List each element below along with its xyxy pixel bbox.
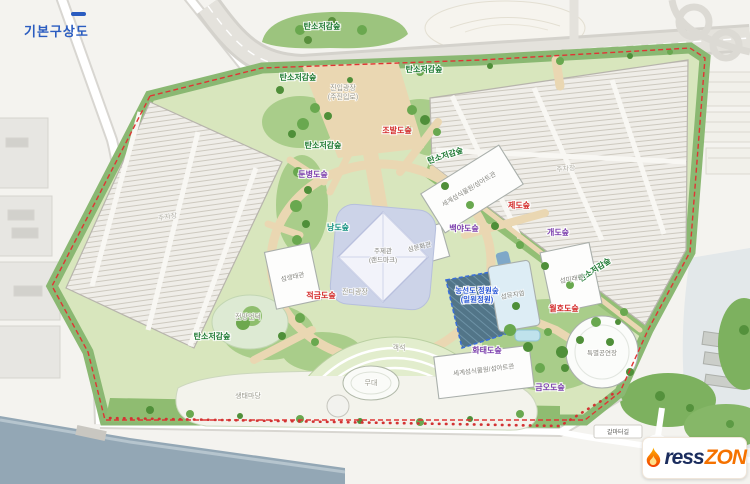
map-label-entry-plaza-1: 진입광장 <box>330 83 356 92</box>
map-label-lookout-hill: 전망언덕 <box>235 312 261 321</box>
map-label-lawn-plaza: 잔디광장 <box>342 287 368 296</box>
map-label-eco-yard: 생태마당 <box>235 391 261 400</box>
screenshot-root: { "title": "기본구상도", "logo": { "name": "P… <box>0 0 750 484</box>
map-label-forest-4: 탄소저감숲 <box>305 140 342 150</box>
page-title: 기본구상도 <box>24 21 89 40</box>
map-label-entry-plaza-2: (주진입로) <box>328 92 358 101</box>
map-label-forest-hwataedo: 화태도숲 <box>472 345 502 355</box>
master-plan-map: 탄소저감숲탄소저감숲탄소저감숲탄소저감숲탄소저감숲탄소저감숲탄소저감숲낭도숲둔병… <box>0 0 750 484</box>
logo-text-zon: ZON <box>705 446 746 470</box>
map-label-forest-jedo: 제도숲 <box>508 200 531 210</box>
map-label-theme-hall-1: 주제관 <box>374 246 392 255</box>
map-label-forest-2: 탄소저감숲 <box>280 72 317 82</box>
map-label-forest-jeokgeumdo: 적금도숲 <box>306 290 336 300</box>
map-label-garden-forest-2: (일원정원) <box>461 294 494 304</box>
map-label-forest-nangdo: 낭도숲 <box>327 222 350 232</box>
map-label-forest-1: 탄소저감숲 <box>304 21 341 31</box>
map-label-forest-7: 탄소저감숲 <box>194 331 231 341</box>
map-label-forest-geumodo: 금오도숲 <box>535 382 565 392</box>
map-label-garden-forest-1: 농선도 정원숲 <box>455 285 499 295</box>
map-label-forest-wolhodo: 월호도숲 <box>549 303 579 313</box>
presszon-logo: ressZON <box>642 437 747 479</box>
map-label-seats: 객석 <box>393 343 406 352</box>
flame-icon <box>643 445 662 471</box>
map-label-forest-gaedo: 개도숲 <box>547 227 570 237</box>
map-label-special-stage: 특별공연장 <box>587 348 617 357</box>
map-label-stage: 무대 <box>365 379 378 387</box>
map-label-road-sign: 갈마터길 <box>607 428 629 436</box>
map-label-forest-jobaldo: 조발도숲 <box>382 125 412 135</box>
map-label-forest-baegyado: 백야도숲 <box>449 223 479 233</box>
title-accent-bar <box>71 12 86 16</box>
logo-text-press: ress <box>664 446 703 470</box>
map-label-forest-3: 탄소저감숲 <box>406 64 443 74</box>
map-label-forest-dunbyeongdo: 둔병도숲 <box>298 169 328 179</box>
map-label-theme-hall-2: (랜드마크) <box>369 255 397 264</box>
